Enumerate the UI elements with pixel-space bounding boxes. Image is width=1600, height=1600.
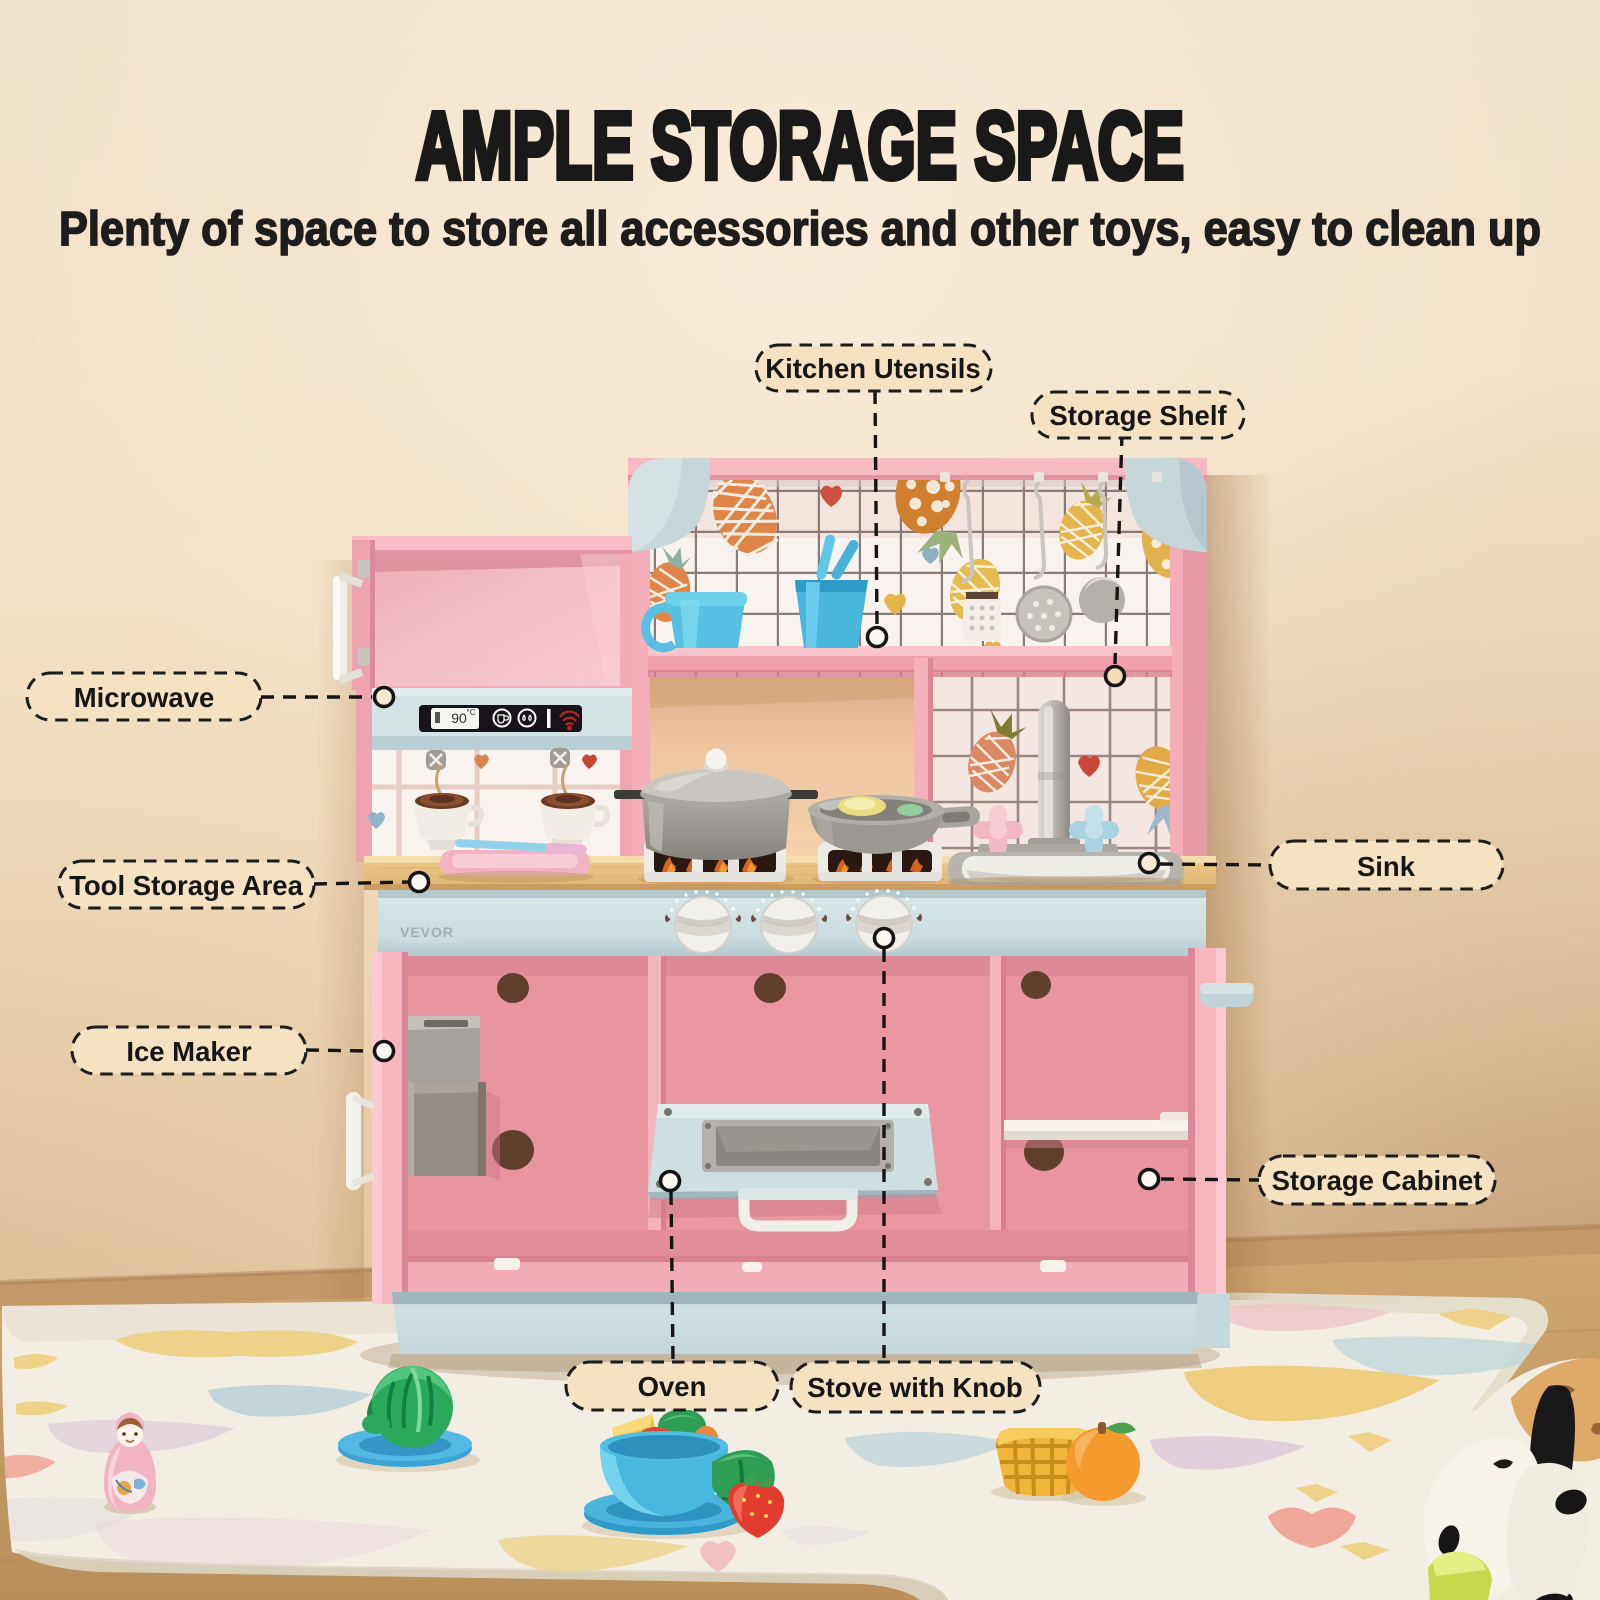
svg-text:Sink: Sink <box>1357 851 1416 882</box>
svg-text:Kitchen Utensils: Kitchen Utensils <box>765 353 980 384</box>
svg-text:Stove with Knob: Stove with Knob <box>807 1372 1022 1403</box>
svg-text:Microwave: Microwave <box>74 682 215 713</box>
svg-text:Oven: Oven <box>638 1371 707 1402</box>
svg-text:Ice Maker: Ice Maker <box>126 1036 252 1067</box>
svg-text:°C: °C <box>467 708 476 717</box>
svg-text:AMPLE STORAGE SPACE: AMPLE STORAGE SPACE <box>416 93 1184 199</box>
svg-text:Storage Shelf: Storage Shelf <box>1049 400 1227 431</box>
svg-text:Plenty of space to store all a: Plenty of space to store all accessories… <box>59 203 1541 256</box>
svg-text:VEVOR: VEVOR <box>400 924 454 940</box>
svg-text:Storage Cabinet: Storage Cabinet <box>1272 1165 1483 1196</box>
svg-text:Tool Storage Area: Tool Storage Area <box>69 870 303 901</box>
svg-text:90: 90 <box>451 710 467 726</box>
